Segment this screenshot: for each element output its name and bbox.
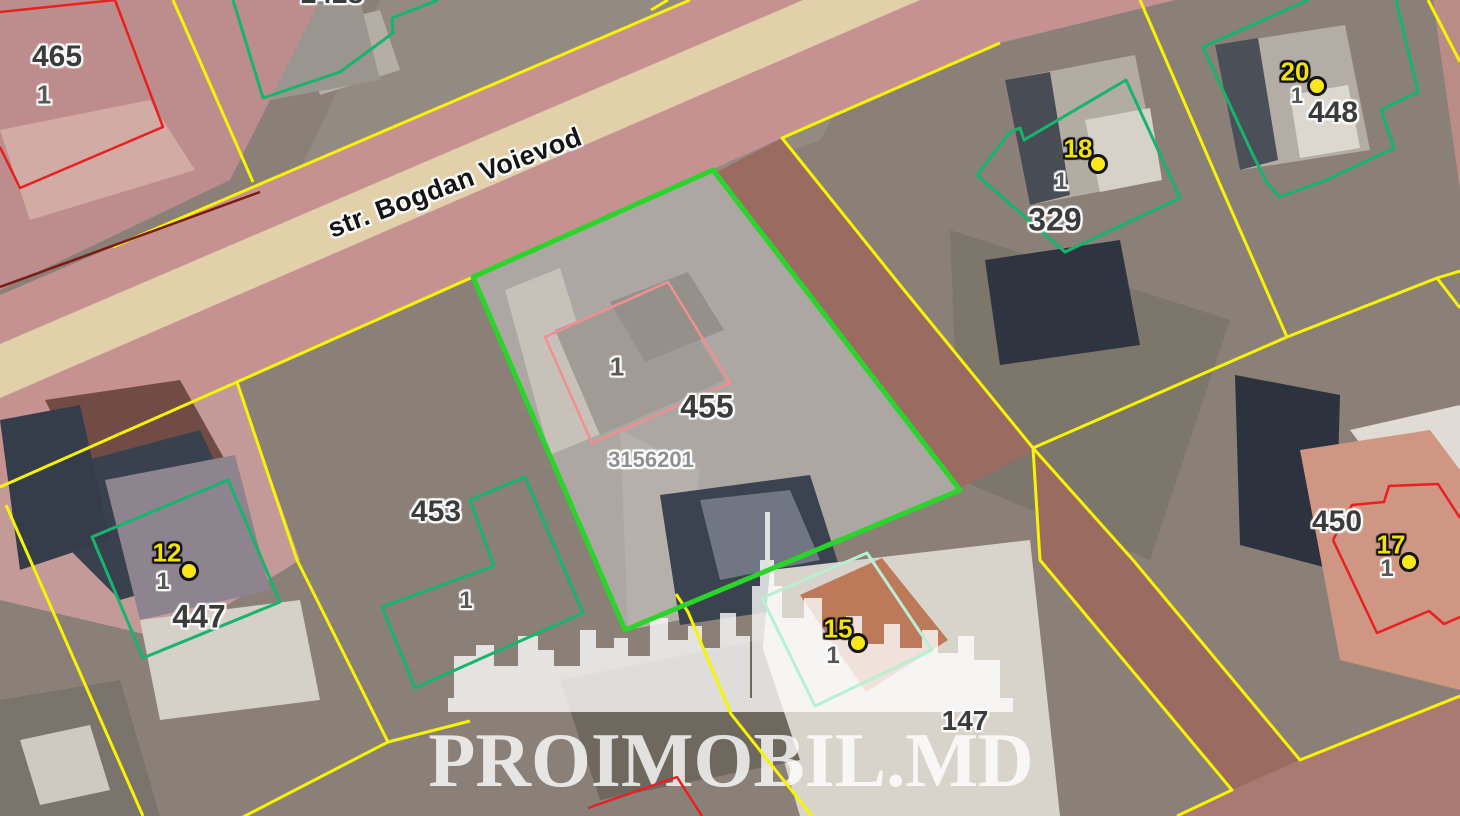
building-label-448: 1 [1291, 83, 1303, 109]
building-label-455: 1 [610, 352, 624, 383]
building-label-447: 1 [156, 568, 169, 596]
green-building-outlines [92, 0, 1418, 688]
listing-pin-12[interactable]: 12 [153, 538, 182, 569]
cadastral-id-label: 3156201 [608, 447, 694, 473]
listing-pin-dot-20[interactable] [1307, 76, 1327, 96]
parcel-label-453: 453 [411, 495, 461, 529]
building-label-465: 1 [37, 80, 51, 111]
parcel-label-448: 448 [1308, 96, 1358, 130]
parcel-label-329: 329 [1028, 202, 1081, 239]
parcel-label-465: 465 [32, 40, 82, 74]
listing-pin-dot-18[interactable] [1088, 154, 1108, 174]
map-canvas[interactable]: PROIMOBIL.MD [0, 0, 1460, 816]
listing-pin-dot-17[interactable] [1399, 552, 1419, 572]
building-label-450: 1 [1380, 555, 1393, 583]
building-label-147: 1 [826, 642, 839, 670]
dark-red-boundary [0, 192, 260, 287]
building-label-453: 1 [459, 587, 472, 615]
parcel-label-147: 147 [942, 705, 989, 737]
parcel-label-2428: 2428 [301, 0, 363, 10]
building-label-329: 1 [1054, 168, 1067, 196]
parcel-label-447: 447 [172, 599, 225, 636]
parcel-label-455: 455 [680, 389, 733, 426]
listing-pin-dot-12[interactable] [179, 561, 199, 581]
listing-pin-dot-15[interactable] [848, 633, 868, 653]
parcel-label-450: 450 [1312, 505, 1362, 539]
